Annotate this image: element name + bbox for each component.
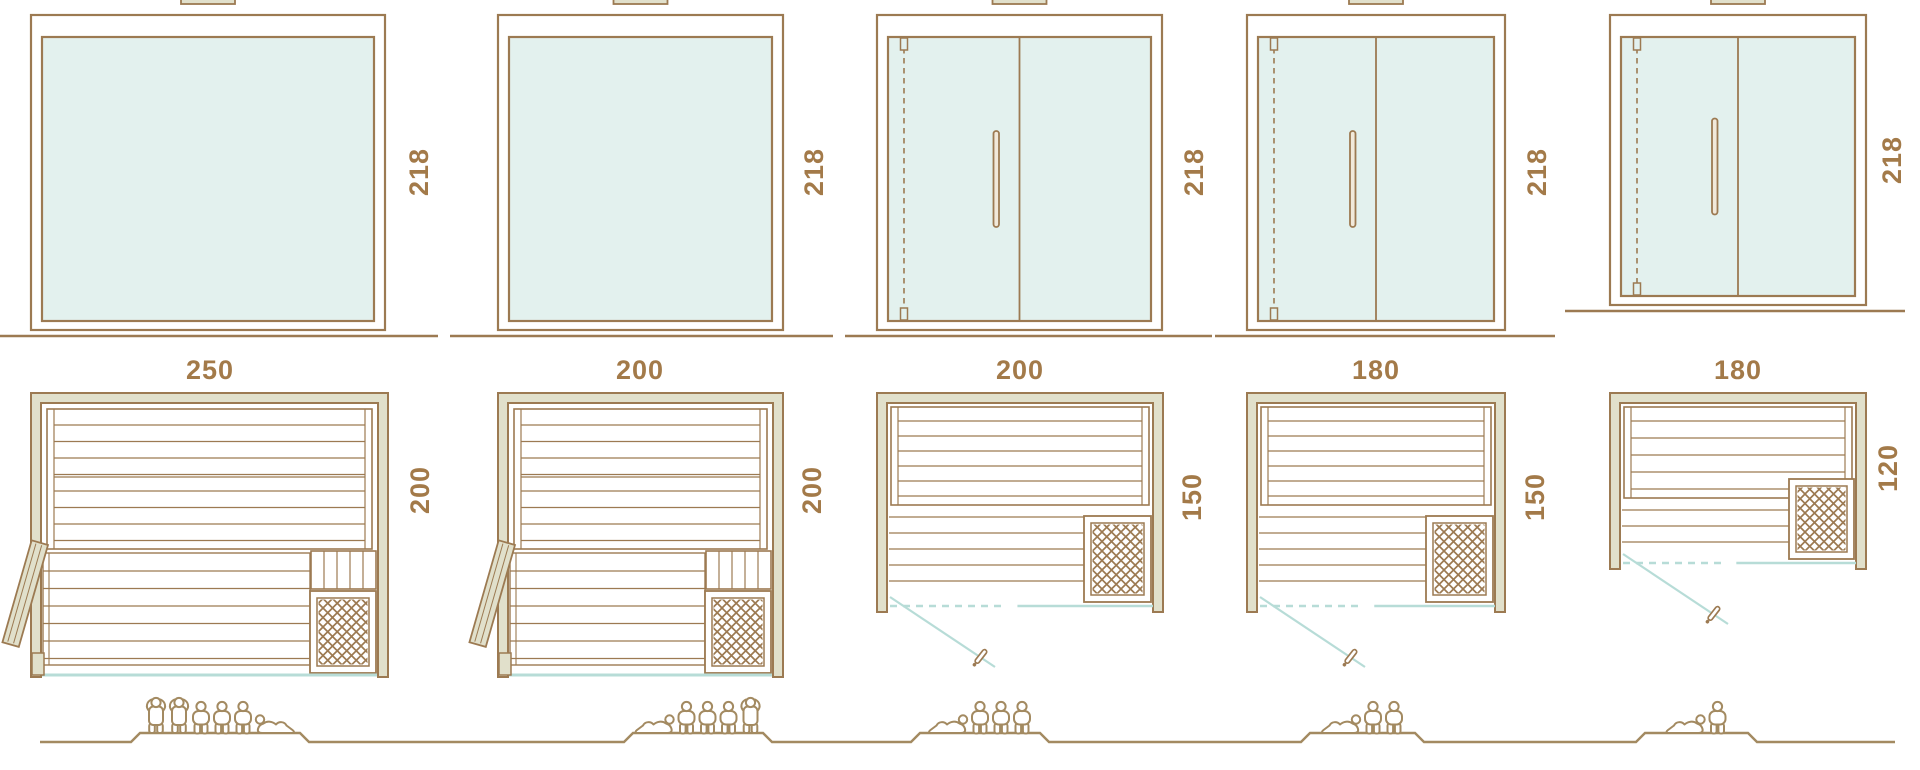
person-reclining-icon [929,715,967,733]
width-label-1: 250 [165,355,255,385]
person-seated-icon [993,702,1009,734]
door-handle-icon [972,649,988,668]
person-seated-icon [1710,702,1726,734]
glass-panel [509,37,772,321]
person-seated-icon [700,702,716,734]
depth-label-2: 200 [797,445,827,535]
door-post [499,653,511,675]
plan-view-3 [877,393,1163,667]
person-reclining-icon [1667,715,1705,733]
upper-bench [891,407,1149,505]
person-seated-icon [1365,702,1381,734]
hinge-icon [901,38,908,50]
plan-view-4 [1247,393,1505,667]
door-handle-icon [1342,649,1358,668]
roof-vent-icon [1711,0,1765,4]
height-label-3: 218 [1179,127,1209,217]
door-handle-icon [1705,606,1721,625]
plan-view-2 [469,393,783,677]
lower-bench [510,553,705,665]
plan-view-5 [1610,393,1866,624]
hinge-icon [1271,38,1278,50]
person-standing-icon [741,698,759,733]
elevation-view-3 [845,0,1212,336]
elevation-view-5 [1565,0,1905,311]
person-reclining-icon [636,715,674,733]
roof-vent-icon [993,0,1047,4]
elevation-view-1 [0,0,438,336]
width-label-5: 180 [1693,355,1783,385]
depth-label-3: 150 [1177,452,1207,542]
side-bench [706,551,771,589]
capacity-group-2 [636,698,760,734]
capacity-group-5 [1667,702,1726,734]
door-post [32,653,44,675]
person-seated-icon [235,702,251,734]
sauna-size-diagram: 218 218 218 218 218 250 200 200 180 180 … [0,0,1920,770]
person-seated-icon [214,702,230,734]
person-reclining-icon [256,715,294,733]
elevation-view-2 [450,0,833,336]
height-label-2: 218 [799,127,829,217]
hinge-icon [901,308,908,320]
hinge-icon [1271,308,1278,320]
heater-icon [1789,479,1854,559]
glass-panel [42,37,374,321]
diagram-canvas [0,0,1920,770]
capacity-group-1 [147,698,294,734]
person-seated-icon [721,702,737,734]
person-seated-icon [1014,702,1030,734]
heater-icon [310,591,376,673]
door-handle-icon [1712,119,1718,215]
capacity-group-4 [1322,702,1402,734]
plan-view-1 [2,393,388,677]
upper-bench [47,409,372,549]
width-label-2: 200 [595,355,685,385]
hinge-icon [1634,38,1641,50]
roof-vent-icon [614,0,668,4]
heater-icon [705,591,771,673]
heater-icon [1426,516,1493,602]
door-handle-icon [994,131,1000,227]
depth-label-5: 120 [1873,423,1903,513]
person-seated-icon [972,702,988,734]
door-handle-icon [1350,131,1356,227]
upper-bench [514,409,767,549]
person-standing-icon [147,698,165,733]
depth-label-1: 200 [405,445,435,535]
width-label-4: 180 [1331,355,1421,385]
height-label-5: 218 [1877,115,1907,205]
roof-vent-icon [1349,0,1403,4]
height-label-1: 218 [404,127,434,217]
elevation-view-4 [1215,0,1555,336]
width-label-3: 200 [975,355,1065,385]
depth-label-4: 150 [1520,452,1550,542]
height-label-4: 218 [1522,127,1552,217]
person-seated-icon [679,702,695,734]
capacity-ground-line [40,733,1895,742]
capacity-group-3 [929,702,1030,734]
lower-bench [43,553,310,665]
roof-vent-icon [181,0,235,4]
heater-icon [1084,516,1151,602]
person-reclining-icon [1322,715,1360,733]
person-seated-icon [1386,702,1402,734]
person-standing-icon [170,698,188,733]
person-seated-icon [193,702,209,734]
hinge-icon [1634,283,1641,295]
upper-bench [1261,407,1491,505]
side-bench [311,551,376,589]
